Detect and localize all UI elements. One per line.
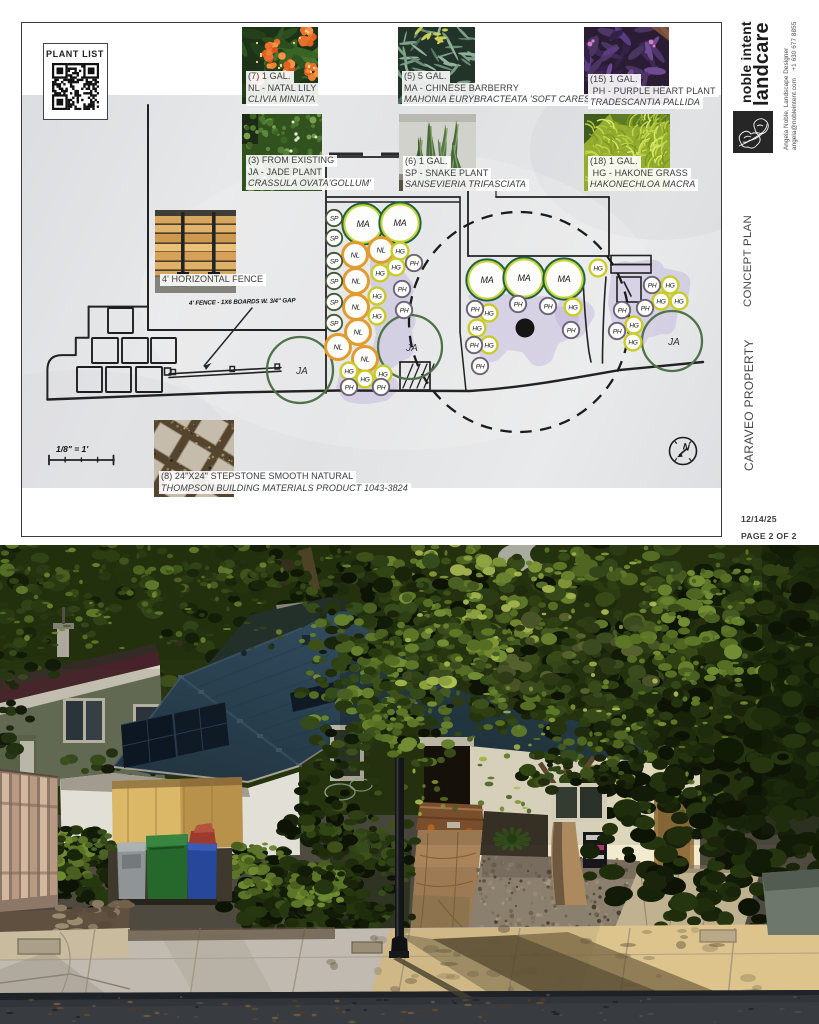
svg-text:NL: NL <box>333 343 342 352</box>
svg-text:PH: PH <box>641 305 650 312</box>
svg-text:PH: PH <box>613 328 622 335</box>
svg-text:HG: HG <box>629 322 638 329</box>
svg-text:HG: HG <box>378 371 387 378</box>
svg-text:PH: PH <box>345 384 354 391</box>
svg-text:PH: PH <box>471 306 480 313</box>
svg-text:NL: NL <box>353 328 362 337</box>
svg-text:SP: SP <box>330 235 339 242</box>
svg-text:HG: HG <box>372 293 381 300</box>
svg-text:SP: SP <box>330 320 339 327</box>
svg-text:SP: SP <box>330 278 339 285</box>
svg-text:PH: PH <box>400 307 409 314</box>
svg-text:HG: HG <box>484 342 493 349</box>
svg-text:JA: JA <box>405 343 418 354</box>
svg-text:HG: HG <box>344 368 353 375</box>
svg-text:MA: MA <box>357 219 370 229</box>
svg-text:PH: PH <box>648 282 657 289</box>
svg-text:JA: JA <box>667 337 680 348</box>
svg-text:NL: NL <box>351 303 360 312</box>
svg-text:HG: HG <box>484 310 493 317</box>
svg-text:MA: MA <box>518 273 531 283</box>
svg-text:PH: PH <box>377 384 386 391</box>
svg-text:PH: PH <box>398 286 407 293</box>
svg-text:PH: PH <box>470 342 479 349</box>
svg-text:SP: SP <box>330 215 339 222</box>
svg-text:SP: SP <box>330 258 339 265</box>
svg-text:PH: PH <box>544 303 553 310</box>
svg-text:HG: HG <box>472 325 481 332</box>
svg-text:HG: HG <box>568 304 577 311</box>
svg-text:HG: HG <box>665 282 674 289</box>
svg-text:PH: PH <box>567 327 576 334</box>
svg-text:HG: HG <box>372 313 381 320</box>
svg-text:1/8" = 1': 1/8" = 1' <box>56 444 89 454</box>
svg-text:NL: NL <box>351 277 360 286</box>
svg-text:HG: HG <box>360 376 369 383</box>
svg-text:MA: MA <box>481 275 494 285</box>
svg-text:JA: JA <box>295 366 308 377</box>
svg-text:HG: HG <box>593 265 602 272</box>
svg-text:NL: NL <box>376 246 385 255</box>
svg-text:HG: HG <box>674 298 683 305</box>
svg-text:SP: SP <box>330 299 339 306</box>
svg-text:PH: PH <box>476 363 485 370</box>
svg-text:MA: MA <box>394 218 407 228</box>
svg-text:HG: HG <box>395 248 404 255</box>
svg-text:HG: HG <box>391 264 400 271</box>
svg-text:HG: HG <box>656 298 665 305</box>
svg-text:HG: HG <box>375 270 384 277</box>
svg-text:PH: PH <box>514 301 523 308</box>
svg-text:PH: PH <box>618 307 627 314</box>
svg-text:MA: MA <box>558 274 571 284</box>
svg-text:PH: PH <box>410 260 419 267</box>
svg-text:NL: NL <box>350 251 359 260</box>
svg-text:NL: NL <box>360 355 369 364</box>
svg-text:HG: HG <box>628 339 637 346</box>
